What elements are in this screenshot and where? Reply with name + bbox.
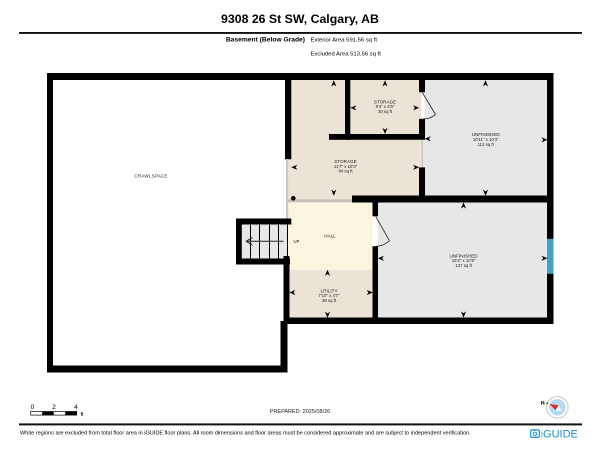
svg-text:White regions are excluded fro: White regions are excluded from total fl…: [20, 431, 471, 437]
svg-text:2: 2: [52, 404, 56, 411]
svg-text:9308 26 St SW, Calgary, AB: 9308 26 St SW, Calgary, AB: [221, 12, 379, 26]
svg-text:Exterior Area 591.56 sq ft: Exterior Area 591.56 sq ft: [311, 37, 378, 43]
svg-text:HALL: HALL: [324, 233, 336, 238]
svg-text:30 sq ft: 30 sq ft: [378, 109, 393, 114]
svg-text:84 sq ft: 84 sq ft: [338, 169, 353, 174]
svg-text:PREPARED: 2025/08/26: PREPARED: 2025/08/26: [270, 409, 330, 415]
svg-text:UP: UP: [294, 239, 300, 244]
svg-text:Basement (Below Grade): Basement (Below Grade): [226, 36, 305, 43]
svg-text:4: 4: [74, 404, 78, 411]
svg-text:iGUIDE: iGUIDE: [541, 429, 578, 441]
svg-text:38 sq ft: 38 sq ft: [322, 298, 337, 303]
svg-text:CRAWLSPACE: CRAWLSPACE: [134, 173, 167, 178]
svg-text:0: 0: [31, 404, 35, 411]
svg-text:137 sq ft: 137 sq ft: [455, 263, 472, 268]
svg-text:ft: ft: [81, 412, 85, 418]
svg-text:112 sq ft: 112 sq ft: [478, 142, 495, 147]
svg-text:Excluded Area 513.56 sq ft: Excluded Area 513.56 sq ft: [311, 51, 382, 57]
